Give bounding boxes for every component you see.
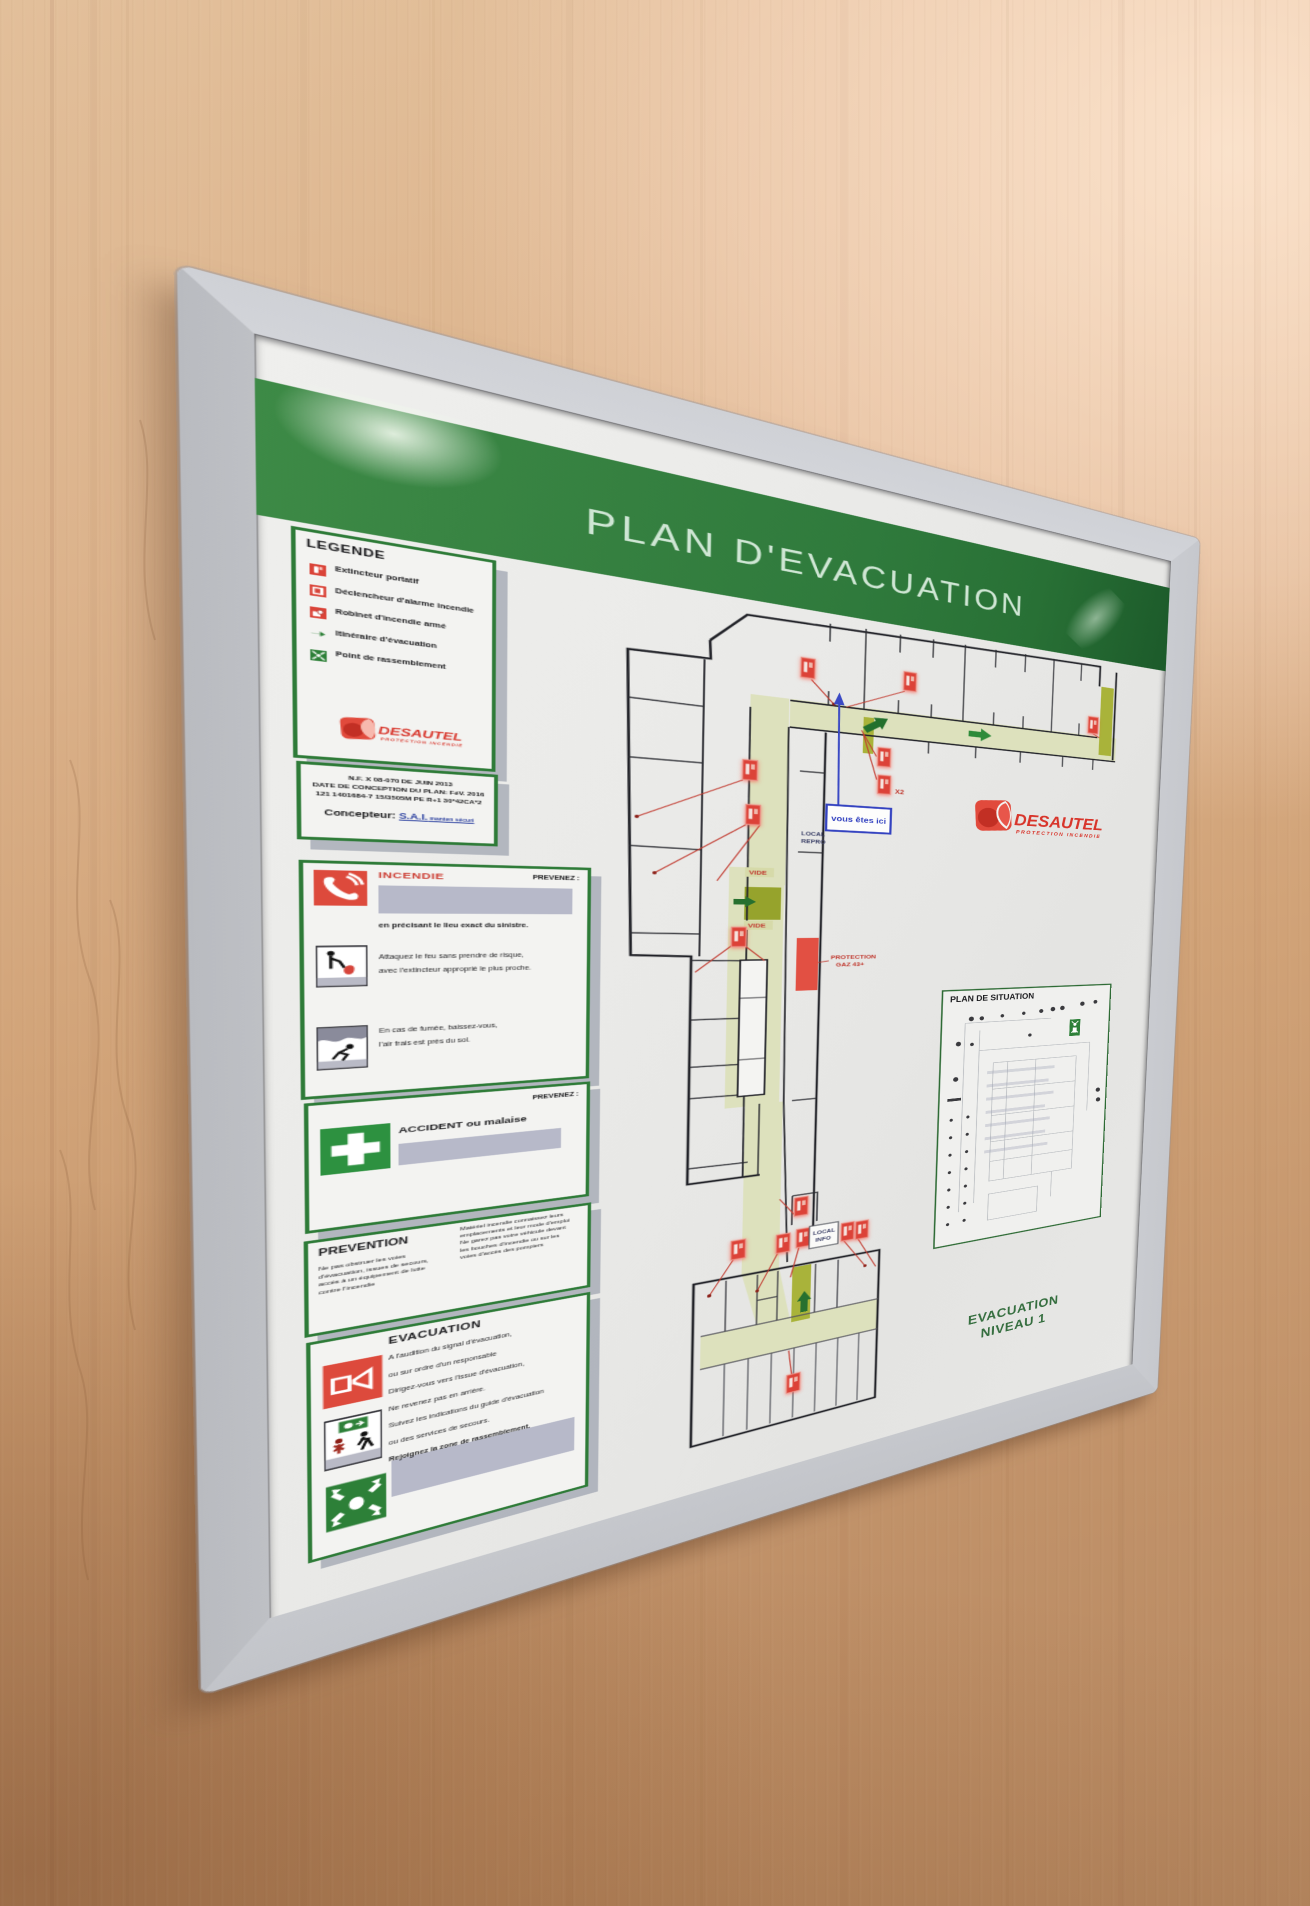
svg-text:LOCAL: LOCAL [801, 830, 825, 838]
svg-text:VIDE: VIDE [748, 922, 766, 929]
svg-text:GAZ 43+: GAZ 43+ [836, 960, 865, 968]
svg-text:VIDE: VIDE [749, 868, 767, 876]
svg-text:PROTECTION: PROTECTION [831, 953, 877, 961]
svg-text:REPRO: REPRO [801, 838, 826, 846]
svg-text:X2: X2 [895, 788, 904, 796]
